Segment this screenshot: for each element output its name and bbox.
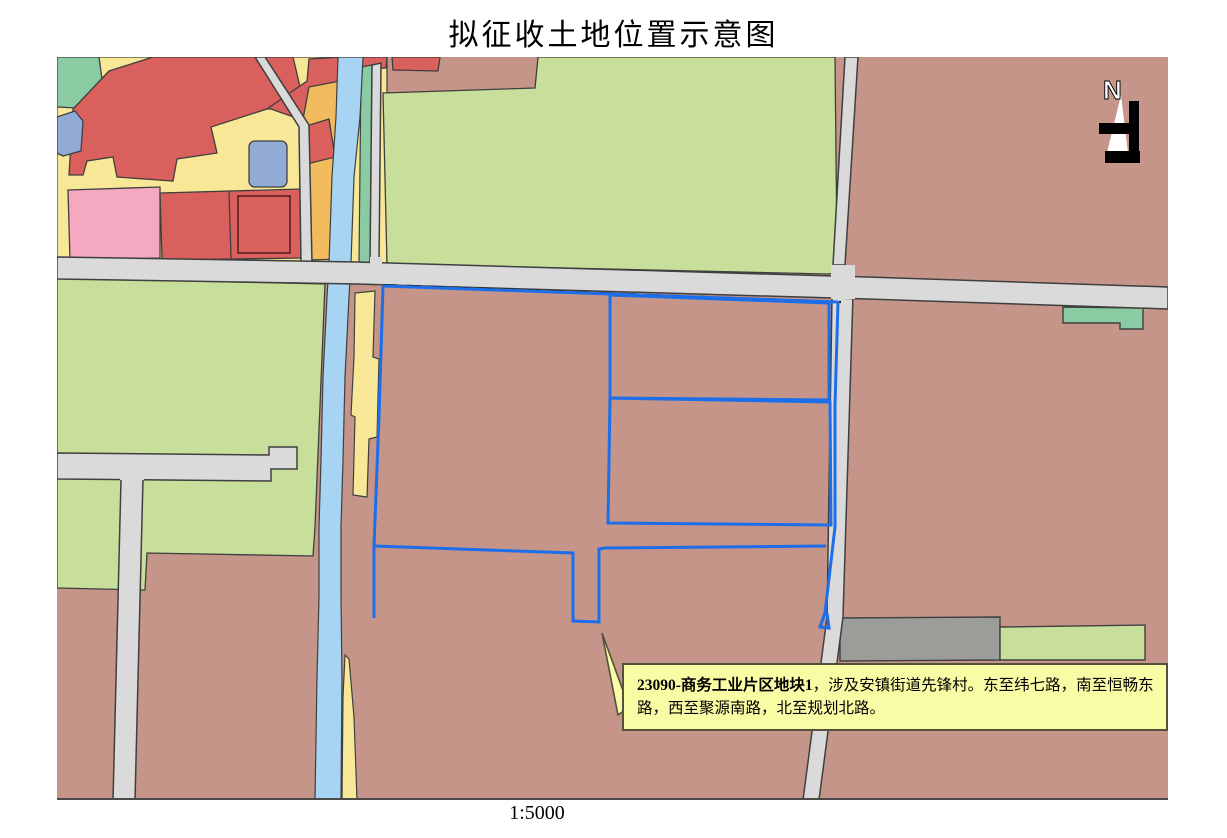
bluegray-building-center bbox=[249, 141, 287, 187]
north-letter: N bbox=[1103, 75, 1122, 105]
pink-parcel bbox=[68, 187, 160, 260]
target-lower-divider bbox=[604, 546, 826, 548]
gray-parcel-south bbox=[840, 617, 1000, 661]
road-riverside bbox=[370, 63, 381, 263]
bluegray-building-west bbox=[57, 111, 83, 156]
page-title: 拟征收土地位置示意图 bbox=[0, 10, 1227, 54]
callout-parcel-code: 23090-商务工业片区地块1 bbox=[637, 677, 813, 694]
green-field-west bbox=[57, 278, 325, 590]
land-acquisition-map: N 23090-商务工业片区地块1，涉及安镇街道先锋村。东至纬七路，南至恒畅东路… bbox=[57, 57, 1168, 800]
map-scale-label: 1:5000 bbox=[427, 802, 647, 825]
red-blocks-south-row bbox=[160, 189, 304, 260]
callout-box: 23090-商务工业片区地块1，涉及安镇街道先锋村。东至纬七路，南至恒畅东路，西… bbox=[622, 663, 1168, 731]
green-parcel-south bbox=[1000, 625, 1145, 660]
